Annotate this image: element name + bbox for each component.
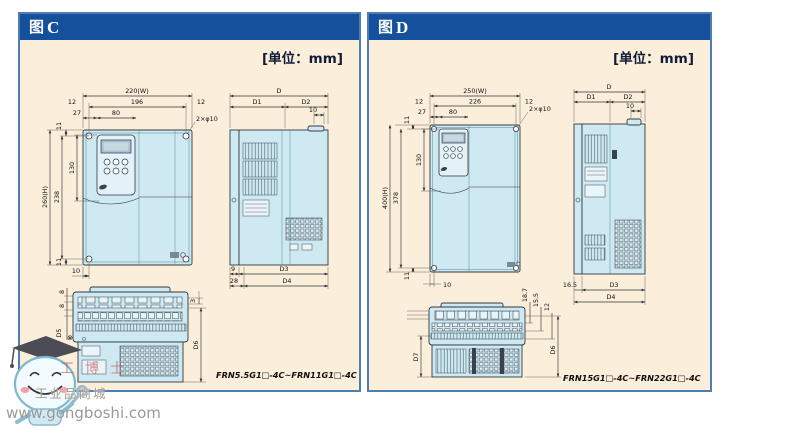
dim-d2: D2 xyxy=(302,98,311,106)
dim-bottom-offset: 11 xyxy=(403,272,411,280)
dim-hole-pitch-h: 238 xyxy=(53,191,61,203)
dim-keypad-height: 130 xyxy=(415,154,423,166)
figure-prefix: 图 xyxy=(29,20,44,35)
dim-18-7: 18.7 xyxy=(521,288,529,302)
dim-small-1: 8 xyxy=(58,290,66,294)
dim-keypad-width: 80 xyxy=(112,109,120,117)
dim-side-10: 10 xyxy=(309,106,317,114)
side-view xyxy=(230,126,328,265)
bottom-view xyxy=(429,303,525,377)
dim-d7: D7 xyxy=(412,353,420,362)
dim-hole-pitch-h: 378 xyxy=(392,192,400,204)
dim-overall-width: 250(W) xyxy=(463,87,487,95)
dim-margin-right: 12 xyxy=(197,98,205,106)
watermark-url: www.gongboshi.com xyxy=(6,404,161,422)
dim-28: 28 xyxy=(230,277,238,285)
dim-d6: D6 xyxy=(549,346,557,355)
dim-keypad-width: 80 xyxy=(449,108,457,116)
dim-margin-left: 12 xyxy=(415,98,423,106)
dimension-drawing-d: 250(W) 226 12 12 27 80 2×φ10 11 400(H) 3… xyxy=(369,40,710,392)
panel-d-titlebar: 图 D xyxy=(369,14,710,40)
dim-d1: D1 xyxy=(587,93,596,101)
dim-overall-width: 220(W) xyxy=(125,87,149,95)
figure-letter: D xyxy=(396,19,408,36)
dim-d6: D6 xyxy=(192,341,200,350)
dim-side-10: 10 xyxy=(626,102,634,110)
dim-d3: D3 xyxy=(280,265,289,273)
front-view xyxy=(83,130,192,265)
watermark-red-text: 工博士 xyxy=(60,358,135,378)
dim-d2: D2 xyxy=(624,93,633,101)
dim-top-offset: 11 xyxy=(403,116,411,124)
front-view xyxy=(430,125,520,272)
dim-keypad-offset: 27 xyxy=(73,109,81,117)
dim-mount-holes: 2×φ10 xyxy=(196,115,218,123)
dim-hole-pitch-w: 196 xyxy=(131,98,143,106)
figure-prefix: 图 xyxy=(378,20,393,35)
dim-hole-x: 10 xyxy=(443,281,451,289)
dim-mount-holes: 2×φ10 xyxy=(529,105,551,113)
side-view xyxy=(574,119,645,274)
dim-9: 9 xyxy=(231,265,235,273)
dim-top-offset: 11 xyxy=(55,122,63,130)
panel-c-titlebar: 图 C xyxy=(20,14,359,40)
dim-depth: D xyxy=(607,83,612,91)
figure-letter: C xyxy=(47,19,59,36)
dim-keypad-offset: 27 xyxy=(418,108,426,116)
dim-hole-x: 10 xyxy=(72,267,80,275)
model-range-label: FRN5.5G1□-4C~FRN11G1□-4C xyxy=(216,370,357,380)
dim-hole-pitch-w: 226 xyxy=(469,98,481,106)
panel-figure-d: 图 D [单位：mm] xyxy=(367,12,712,392)
dim-overall-height: 400(H) xyxy=(381,187,389,209)
dim-3: 3 xyxy=(189,299,197,303)
dim-15-5: 15.5 xyxy=(532,293,540,307)
dim-12: 12 xyxy=(543,303,551,311)
dim-d4: D4 xyxy=(283,277,292,285)
dim-keypad-height: 130 xyxy=(68,162,76,174)
dim-16-5: 16.5 xyxy=(563,281,577,289)
dim-d3: D3 xyxy=(610,281,619,289)
dim-overall-height: 260(H) xyxy=(41,186,49,208)
dim-margin-left: 12 xyxy=(68,98,76,106)
dim-bottom-offset: 11 xyxy=(55,258,63,266)
dim-small-2: 8 xyxy=(58,304,66,308)
watermark-shop-name: 工业品商城 xyxy=(35,383,108,402)
model-range-label: FRN15G1□-4C~FRN22G1□-4C xyxy=(563,373,701,383)
dim-d4: D4 xyxy=(607,293,616,301)
dim-d1: D1 xyxy=(253,98,262,106)
dim-depth: D xyxy=(277,87,282,95)
